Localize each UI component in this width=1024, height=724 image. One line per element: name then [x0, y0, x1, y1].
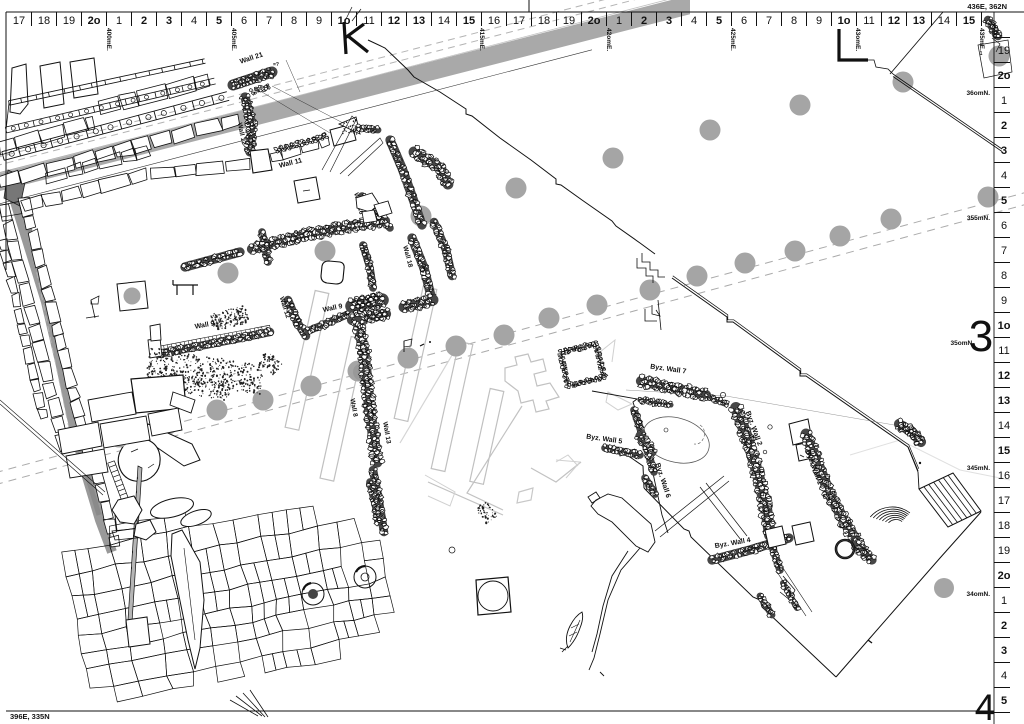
svg-text:7: 7 [766, 15, 772, 27]
svg-text:1: 1 [980, 51, 983, 57]
svg-text:4: 4 [191, 15, 197, 27]
svg-text:5: 5 [1001, 695, 1007, 707]
svg-text:355mN.: 355mN. [967, 215, 990, 222]
svg-text:1: 1 [1001, 595, 1007, 607]
svg-text:15: 15 [463, 15, 475, 27]
svg-text:13: 13 [998, 395, 1010, 407]
svg-text:3: 3 [166, 15, 172, 27]
svg-text:34omN.: 34omN. [967, 591, 991, 598]
svg-text:15: 15 [963, 15, 975, 27]
svg-text:3: 3 [969, 312, 993, 361]
svg-text:1: 1 [1001, 95, 1007, 107]
svg-text:405mE.: 405mE. [230, 28, 237, 51]
svg-text:2o: 2o [998, 70, 1011, 82]
svg-text:11: 11 [998, 345, 1009, 357]
svg-text:14: 14 [938, 15, 950, 27]
svg-text:4: 4 [975, 687, 996, 724]
svg-text:18: 18 [538, 15, 550, 27]
svg-text:18: 18 [998, 520, 1010, 532]
svg-text:8: 8 [1001, 270, 1007, 282]
svg-text:4: 4 [1001, 670, 1007, 682]
svg-text:9: 9 [316, 15, 322, 27]
svg-text:43omE.: 43omE. [854, 28, 861, 51]
svg-text:9: 9 [1001, 295, 1007, 307]
svg-text:3: 3 [1001, 145, 1007, 157]
svg-text:7: 7 [266, 15, 272, 27]
svg-text:2: 2 [641, 15, 647, 27]
svg-text:2: 2 [1001, 120, 1007, 132]
svg-text:8: 8 [291, 15, 297, 27]
svg-text:425mE.: 425mE. [729, 28, 736, 51]
svg-text:2: 2 [1001, 620, 1007, 632]
svg-text:5: 5 [716, 15, 722, 27]
svg-text:8: 8 [791, 15, 797, 27]
svg-text:436E, 362N: 436E, 362N [967, 2, 1007, 11]
svg-text:400mE.: 400mE. [105, 28, 112, 51]
svg-text:42omE.: 42omE. [605, 28, 612, 51]
svg-text:17: 17 [998, 495, 1010, 507]
svg-text:12: 12 [888, 15, 900, 27]
svg-text:19: 19 [998, 545, 1010, 557]
svg-text:4: 4 [691, 15, 697, 27]
svg-text:1o: 1o [338, 15, 351, 27]
svg-text:17: 17 [13, 15, 25, 27]
svg-text:18: 18 [38, 15, 50, 27]
svg-text:9: 9 [816, 15, 822, 27]
svg-text:2: 2 [141, 15, 147, 27]
svg-text:2o: 2o [998, 570, 1011, 582]
svg-text:1: 1 [116, 15, 122, 27]
svg-text:2o: 2o [88, 15, 101, 27]
svg-text:3: 3 [1001, 645, 1007, 657]
svg-text:5: 5 [216, 15, 222, 27]
svg-text:11: 11 [363, 15, 374, 27]
svg-text:12: 12 [998, 370, 1010, 382]
svg-text:13: 13 [913, 15, 925, 27]
svg-text:3: 3 [666, 15, 672, 27]
svg-text:15: 15 [998, 445, 1010, 457]
svg-text:6: 6 [741, 15, 747, 27]
svg-text:5: 5 [1001, 195, 1007, 207]
svg-text:11: 11 [863, 15, 874, 27]
svg-text:6: 6 [241, 15, 247, 27]
svg-text:345mN.: 345mN. [967, 465, 990, 472]
svg-text:435mE.: 435mE. [978, 28, 985, 51]
svg-text:16: 16 [488, 15, 500, 27]
svg-text:1o: 1o [998, 320, 1011, 332]
svg-text:=?: =? [273, 62, 279, 68]
svg-text:1o: 1o [838, 15, 851, 27]
svg-text:19: 19 [63, 15, 75, 27]
svg-text:17: 17 [513, 15, 525, 27]
svg-text:396E, 335N: 396E, 335N [10, 712, 50, 721]
svg-text:7: 7 [1001, 245, 1007, 257]
svg-text:13: 13 [413, 15, 425, 27]
svg-text:36omN.: 36omN. [967, 90, 991, 97]
svg-text:16: 16 [998, 470, 1010, 482]
svg-text:19: 19 [563, 15, 575, 27]
svg-text:4: 4 [1001, 170, 1007, 182]
svg-text:12: 12 [388, 15, 400, 27]
svg-text:6: 6 [1001, 220, 1007, 232]
svg-text:2o: 2o [588, 15, 601, 27]
svg-text:14: 14 [438, 15, 450, 27]
svg-text:19: 19 [998, 45, 1010, 57]
svg-text:1: 1 [616, 15, 622, 27]
svg-text:14: 14 [998, 420, 1010, 432]
svg-text:415mE.: 415mE. [478, 28, 485, 51]
